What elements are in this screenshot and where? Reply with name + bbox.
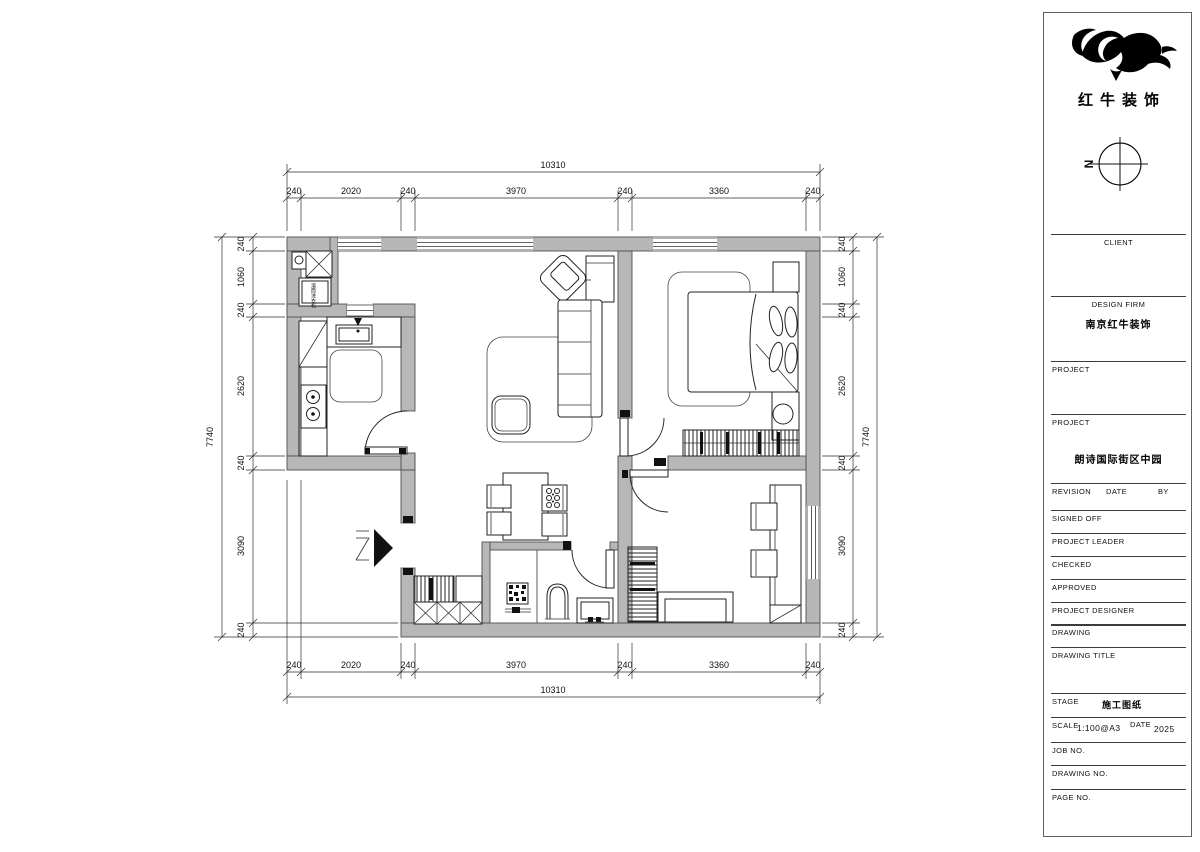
dim-text: 240 bbox=[837, 622, 847, 637]
window-bedroom2-right bbox=[806, 506, 820, 579]
utility-box bbox=[292, 252, 306, 269]
dim-text: 240 bbox=[805, 660, 820, 670]
dim-text: 7740 bbox=[205, 427, 215, 447]
entry-arrow bbox=[356, 529, 393, 567]
dim-text: 2620 bbox=[236, 376, 246, 396]
cabinet-x-row bbox=[414, 602, 482, 624]
divider bbox=[1051, 361, 1186, 362]
date-value: 2025 bbox=[1154, 724, 1175, 734]
project-value: 朗诗国际街区中园 bbox=[1044, 451, 1193, 466]
armchair bbox=[538, 253, 589, 304]
divider bbox=[1051, 624, 1186, 626]
dim-text: 240 bbox=[837, 236, 847, 251]
dim-text: 240 bbox=[400, 186, 415, 196]
client-label: CLIENT bbox=[1044, 238, 1193, 247]
vanity-sink bbox=[577, 598, 613, 623]
window-kitchen-pass bbox=[347, 304, 373, 317]
dim-text: 2020 bbox=[341, 186, 361, 196]
design-firm-value: 南京红牛装饰 bbox=[1044, 316, 1193, 331]
north-label: N bbox=[1082, 160, 1096, 169]
dim-chain-top: 10310 240 2020 240 3970 240 3360 240 bbox=[283, 160, 824, 231]
desk-chair bbox=[751, 503, 777, 530]
divider bbox=[1051, 789, 1186, 790]
dim-text: 2620 bbox=[837, 376, 847, 396]
scale-label: SCALE bbox=[1052, 721, 1079, 730]
project-designer-label: PROJECT DESIGNER bbox=[1052, 606, 1135, 615]
divider bbox=[1051, 483, 1186, 484]
dim-text: 240 bbox=[617, 186, 632, 196]
project-label: PROJECT bbox=[1052, 365, 1090, 374]
scale-value: 1:100@A3 bbox=[1077, 723, 1121, 733]
dim-text: 3360 bbox=[709, 660, 729, 670]
date-field-label: DATE bbox=[1130, 720, 1151, 729]
dim-text: 240 bbox=[400, 660, 415, 670]
divider bbox=[1051, 579, 1186, 580]
dim-text: 3090 bbox=[837, 536, 847, 556]
window-living-top bbox=[417, 237, 533, 251]
cabinet-x bbox=[306, 251, 332, 277]
dim-text: 3360 bbox=[709, 186, 729, 196]
dim-text: 240 bbox=[837, 302, 847, 317]
double-bed bbox=[688, 292, 798, 392]
divider bbox=[1051, 234, 1186, 235]
living-room bbox=[487, 253, 614, 442]
brand-name: 红牛装饰 bbox=[1044, 89, 1193, 110]
desk-chair bbox=[751, 550, 777, 577]
kitchen-table bbox=[330, 350, 382, 402]
dim-text: 240 bbox=[286, 186, 301, 196]
bathroom bbox=[505, 550, 613, 623]
drawing-title-label: DRAWING TITLE bbox=[1052, 651, 1116, 660]
signed-off-label: SIGNED OFF bbox=[1052, 514, 1102, 523]
bedroom2-wardrobe bbox=[628, 547, 657, 622]
washing-machine: 滚筒洗衣机 bbox=[299, 278, 331, 309]
project-label: PROJECT bbox=[1052, 418, 1090, 427]
fridge bbox=[299, 321, 327, 367]
revision-label: REVISION bbox=[1052, 487, 1091, 496]
shower-ledge bbox=[505, 607, 531, 613]
divider bbox=[1051, 693, 1186, 694]
dining-chair bbox=[487, 485, 511, 508]
sofa bbox=[558, 300, 602, 417]
stove bbox=[301, 385, 326, 428]
dim-text: 3970 bbox=[506, 186, 526, 196]
master-bedroom bbox=[668, 262, 799, 456]
company-logo-icon bbox=[1044, 21, 1193, 87]
dim-text: 10310 bbox=[540, 685, 565, 695]
drawing-no-label: DRAWING NO. bbox=[1052, 769, 1108, 778]
master-wardrobe bbox=[683, 430, 799, 456]
divider bbox=[1051, 765, 1186, 766]
dim-text: 240 bbox=[286, 660, 301, 670]
dim-text: 3090 bbox=[236, 536, 246, 556]
shoe-cabinet-plain bbox=[456, 576, 482, 602]
dim-text: 240 bbox=[236, 236, 246, 251]
divider bbox=[1051, 510, 1186, 511]
dim-text: 3970 bbox=[506, 660, 526, 670]
dim-text: 7740 bbox=[861, 427, 871, 447]
window-balcony-top bbox=[338, 237, 381, 251]
approved-label: APPROVED bbox=[1052, 583, 1097, 592]
page-no-label: PAGE NO. bbox=[1052, 793, 1091, 802]
washer-label: 滚筒洗衣机 bbox=[310, 282, 316, 309]
stage-value: 施工图纸 bbox=[1102, 698, 1142, 711]
divider bbox=[1051, 602, 1186, 603]
dim-text: 240 bbox=[236, 455, 246, 470]
toilet bbox=[545, 584, 570, 619]
entry-opening bbox=[403, 516, 413, 575]
dim-text: 1060 bbox=[236, 267, 246, 287]
divider bbox=[1051, 414, 1186, 415]
project-leader-label: PROJECT LEADER bbox=[1052, 537, 1125, 546]
dim-text: 240 bbox=[837, 455, 847, 470]
checked-label: CHECKED bbox=[1052, 560, 1091, 569]
dim-text: 240 bbox=[805, 186, 820, 196]
divider bbox=[1051, 742, 1186, 743]
shoe-cabinet-striped bbox=[414, 576, 454, 602]
dim-text: 240 bbox=[236, 622, 246, 637]
dim-text: 1060 bbox=[837, 267, 847, 287]
bedroom2 bbox=[628, 485, 801, 623]
bathroom-door bbox=[563, 541, 614, 588]
side-cabinet bbox=[586, 256, 614, 302]
divider bbox=[1051, 533, 1186, 534]
divider bbox=[1051, 647, 1186, 648]
window-master-top bbox=[653, 237, 717, 251]
pouf bbox=[492, 396, 530, 434]
date-label: DATE bbox=[1106, 487, 1127, 496]
dim-text: 10310 bbox=[540, 160, 565, 170]
nightstand-top bbox=[773, 262, 799, 292]
sink bbox=[336, 318, 372, 344]
corner-cabinet bbox=[770, 605, 801, 623]
dim-text: 240 bbox=[236, 302, 246, 317]
dim-chain-right: 240 1060 240 2620 240 3090 240 7740 bbox=[822, 233, 884, 641]
drawing-label: DRAWING bbox=[1052, 628, 1091, 637]
dining-area bbox=[487, 473, 567, 540]
kitchen-door bbox=[365, 411, 407, 454]
drawing-sheet: 滚筒洗衣机 bbox=[0, 0, 1200, 852]
floor-drain bbox=[507, 583, 528, 604]
floor-plan-canvas: 滚筒洗衣机 bbox=[0, 0, 1045, 852]
title-block: 红牛装饰 N CLIENT DESIGN FIRM 南京红牛装饰 PROJECT… bbox=[1043, 12, 1192, 837]
dim-text: 2020 bbox=[341, 660, 361, 670]
divider bbox=[1051, 296, 1186, 297]
dining-chair-patterned bbox=[542, 485, 567, 511]
entry-direction-glyph bbox=[356, 531, 369, 560]
stage-label: STAGE bbox=[1052, 697, 1079, 706]
dining-chair bbox=[542, 513, 567, 536]
design-firm-label: DESIGN FIRM bbox=[1044, 300, 1193, 309]
divider bbox=[1051, 556, 1186, 557]
dim-text: 240 bbox=[617, 660, 632, 670]
dining-chair bbox=[487, 512, 511, 535]
north-compass-icon: N bbox=[1082, 131, 1154, 197]
by-label: BY bbox=[1158, 487, 1169, 496]
entry-cabinets bbox=[414, 576, 482, 624]
kitchen bbox=[299, 317, 401, 456]
bench-sofa bbox=[658, 592, 733, 622]
divider bbox=[1051, 717, 1186, 718]
job-no-label: JOB NO. bbox=[1052, 746, 1085, 755]
